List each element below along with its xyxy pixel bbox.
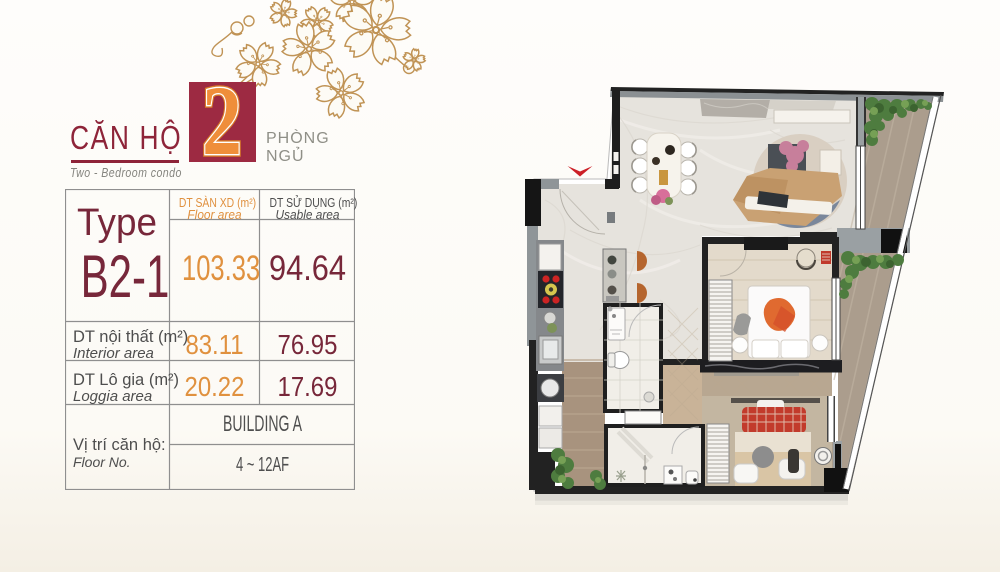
svg-text:2: 2	[202, 70, 242, 170]
